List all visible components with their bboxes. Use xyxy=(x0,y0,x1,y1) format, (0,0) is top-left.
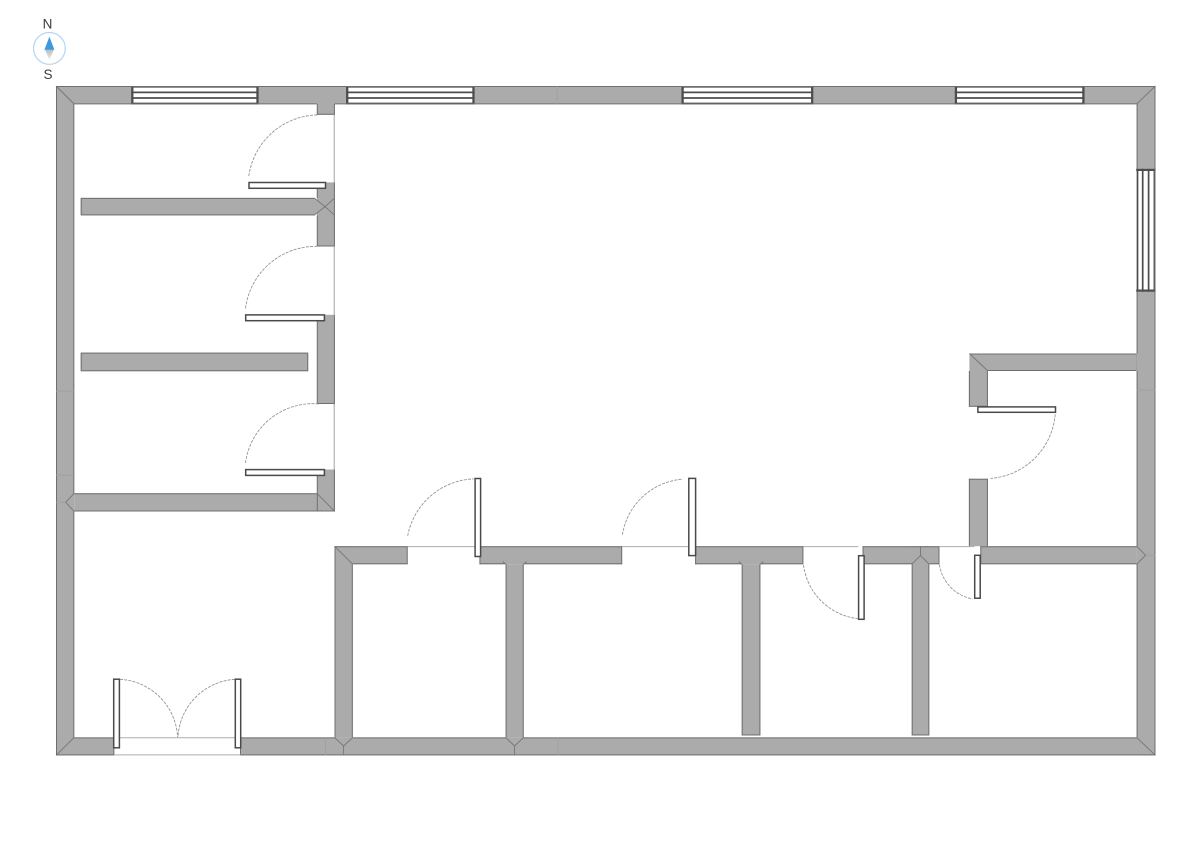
svg-text:N: N xyxy=(43,16,53,31)
svg-text:S: S xyxy=(43,67,52,82)
